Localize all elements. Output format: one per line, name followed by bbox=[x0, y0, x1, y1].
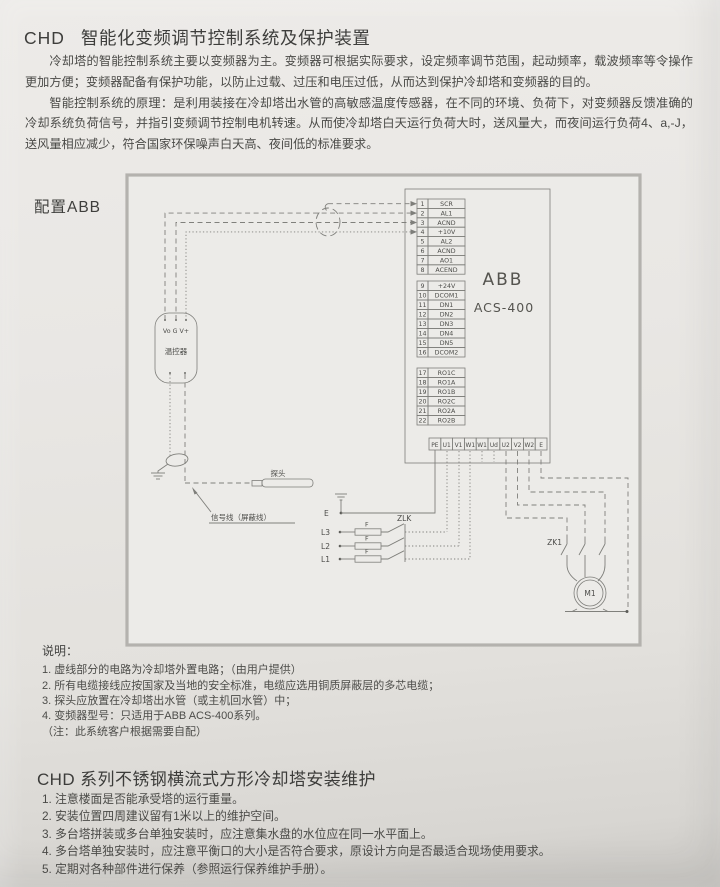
svg-text:12: 12 bbox=[418, 312, 426, 319]
config-abb-label: 配置ABB bbox=[34, 195, 101, 217]
svg-text:+24V: +24V bbox=[438, 283, 456, 290]
svg-text:18: 18 bbox=[418, 380, 426, 387]
maintenance-list: 1. 注意楼面是否能承受塔的运行重量。 2. 安装位置四周建议留有1米以上的维护… bbox=[42, 791, 551, 878]
svg-text:4: 4 bbox=[420, 229, 424, 236]
contactor-label: ZK1 bbox=[547, 538, 562, 547]
page-title-brand: CHD bbox=[24, 28, 81, 48]
svg-text:DN3: DN3 bbox=[440, 321, 454, 328]
svg-text:W1: W1 bbox=[466, 443, 476, 449]
maintenance-item: 4. 多台塔单独安装时，应注意平衡口的大小是否符合要求，原设计方向是否最适合现场… bbox=[42, 843, 551, 860]
junction-dot bbox=[626, 610, 629, 613]
svg-text:U1: U1 bbox=[443, 443, 451, 449]
fuse-label: F bbox=[365, 549, 369, 556]
svg-text:17: 17 bbox=[418, 370, 426, 377]
svg-text:2: 2 bbox=[420, 210, 424, 217]
page-title: CHD智能化变频调节控制系统及保护装置 bbox=[24, 25, 371, 50]
svg-text:14: 14 bbox=[418, 331, 426, 338]
svg-text:DN4: DN4 bbox=[440, 331, 454, 338]
svg-text:+10V: +10V bbox=[438, 229, 456, 236]
svg-text:20: 20 bbox=[418, 399, 426, 406]
svg-text:13: 13 bbox=[418, 321, 426, 328]
svg-text:10: 10 bbox=[418, 293, 426, 300]
svg-text:15: 15 bbox=[418, 340, 426, 347]
svg-text:E: E bbox=[539, 443, 543, 449]
notes-footnote: （注：此系统客户根据需要自配） bbox=[42, 725, 439, 740]
svg-text:5: 5 bbox=[420, 239, 424, 246]
svg-text:8: 8 bbox=[420, 267, 424, 274]
svg-text:SCR: SCR bbox=[440, 201, 453, 208]
controller-label: 温控器 bbox=[165, 346, 188, 356]
probe-label: 探头 bbox=[271, 468, 286, 478]
fuse-label: F bbox=[365, 522, 369, 529]
pin-dot bbox=[169, 372, 171, 374]
maintenance-title: CHD 系列不锈钢横流式方形冷却塔安装维护 bbox=[37, 765, 376, 790]
svg-text:21: 21 bbox=[418, 408, 426, 415]
svg-text:DCOM1: DCOM1 bbox=[435, 293, 459, 300]
scanned-page: CHD智能化变频调节控制系统及保护装置 冷却塔的智能控制系统主要以变频器为主。变… bbox=[0, 0, 720, 887]
motor-label: M1 bbox=[584, 589, 595, 598]
phase-l1-label: L1 bbox=[321, 555, 330, 564]
phase-l2-label: L2 bbox=[321, 542, 330, 551]
controller-pins-label: Vo G V+ bbox=[163, 328, 189, 335]
earth-label: E bbox=[324, 509, 329, 518]
phase-l3-label: L3 bbox=[321, 528, 330, 537]
wiring-diagram: ABB ACS-400 1SCR2AL13ACND4+10V5AL26ACND7… bbox=[125, 173, 642, 647]
svg-text:19: 19 bbox=[418, 389, 426, 396]
pin-dot bbox=[185, 319, 187, 321]
svg-text:DN2: DN2 bbox=[440, 312, 454, 319]
pin-dot bbox=[164, 319, 166, 321]
svg-text:1: 1 bbox=[420, 201, 424, 208]
maintenance-item: 1. 注意楼面是否能承受塔的运行重量。 bbox=[42, 791, 551, 808]
note-item: 1. 虚线部分的电路为冷却塔外置电路；（由用户提供） bbox=[42, 663, 439, 678]
svg-text:DN5: DN5 bbox=[440, 340, 454, 347]
svg-text:PE: PE bbox=[431, 443, 439, 449]
svg-text:V2: V2 bbox=[514, 443, 522, 449]
pin-dot bbox=[175, 319, 177, 321]
svg-text:16: 16 bbox=[418, 350, 426, 357]
svg-text:9: 9 bbox=[420, 283, 424, 290]
svg-text:AL1: AL1 bbox=[441, 210, 453, 217]
maintenance-item: 2. 安装位置四周建议留有1米以上的维护空间。 bbox=[42, 808, 551, 825]
svg-text:RO2B: RO2B bbox=[438, 418, 456, 425]
svg-text:V1: V1 bbox=[455, 443, 463, 449]
svg-text:6: 6 bbox=[420, 248, 424, 255]
inverter-model-label: ACS-400 bbox=[474, 300, 534, 315]
svg-text:U2: U2 bbox=[502, 443, 510, 449]
breaker-label: ZLK bbox=[397, 514, 412, 523]
svg-text:22: 22 bbox=[418, 418, 426, 425]
note-item: 2. 所有电缆接线应按国家及当地的安全标准，电缆应选用铜质屏蔽层的多芯电缆； bbox=[42, 679, 439, 694]
fuse-label: F bbox=[365, 536, 369, 543]
svg-text:W2: W2 bbox=[525, 443, 535, 449]
pin-dot bbox=[184, 372, 186, 374]
note-item: 3. 探头应放置在冷却塔出水管（或主机回水管）中； bbox=[42, 694, 439, 709]
maintenance-item: 3. 多台塔拼装或多台单独安装时，应注意集水盘的水位应在同一水平面上。 bbox=[42, 826, 551, 843]
signal-line-label: 信号线（屏蔽线） bbox=[211, 512, 271, 522]
intro-paragraph-2: 智能控制系统的原理：是利用装接在冷却塔出水管的高敏感温度传感器，在不同的环境、负… bbox=[25, 93, 693, 155]
svg-text:DCOM2: DCOM2 bbox=[435, 350, 459, 357]
svg-text:AO1: AO1 bbox=[440, 257, 453, 264]
svg-text:ACEND: ACEND bbox=[435, 267, 457, 274]
diagram-frame bbox=[127, 175, 640, 645]
svg-text:RO2A: RO2A bbox=[438, 408, 456, 415]
maintenance-item: 5. 定期对各种部件进行保养（参照运行保养维护手册）。 bbox=[42, 861, 551, 878]
svg-text:ACND: ACND bbox=[437, 220, 455, 227]
svg-text:11: 11 bbox=[418, 302, 426, 309]
notes-section: 说明： 1. 虚线部分的电路为冷却塔外置电路；（由用户提供） 2. 所有电缆接线… bbox=[42, 644, 439, 740]
svg-text:AL2: AL2 bbox=[441, 239, 453, 246]
svg-text:RO1C: RO1C bbox=[438, 370, 456, 377]
svg-text:7: 7 bbox=[420, 257, 424, 264]
page-title-text: 智能化变频调节控制系统及保护装置 bbox=[81, 28, 371, 48]
notes-heading: 说明： bbox=[42, 644, 439, 659]
svg-text:ACND: ACND bbox=[437, 248, 455, 255]
svg-text:W1: W1 bbox=[477, 443, 487, 449]
svg-text:3: 3 bbox=[420, 220, 424, 227]
svg-text:RO2C: RO2C bbox=[438, 399, 456, 406]
intro-paragraph-1: 冷却塔的智能控制系统主要以变频器为主。变频器可根据实际要求，设定频率调节范围，起… bbox=[25, 51, 693, 93]
intro-text: 冷却塔的智能控制系统主要以变频器为主。变频器可根据实际要求，设定频率调节范围，起… bbox=[25, 51, 693, 155]
inverter-brand-label: ABB bbox=[483, 270, 524, 290]
svg-text:DN1: DN1 bbox=[440, 302, 454, 309]
svg-text:Ud: Ud bbox=[490, 443, 498, 449]
svg-text:RO1B: RO1B bbox=[438, 389, 456, 396]
svg-text:RO1A: RO1A bbox=[438, 380, 456, 387]
note-item: 4. 变频器型号：只适用于ABB ACS-400系列。 bbox=[42, 709, 439, 724]
